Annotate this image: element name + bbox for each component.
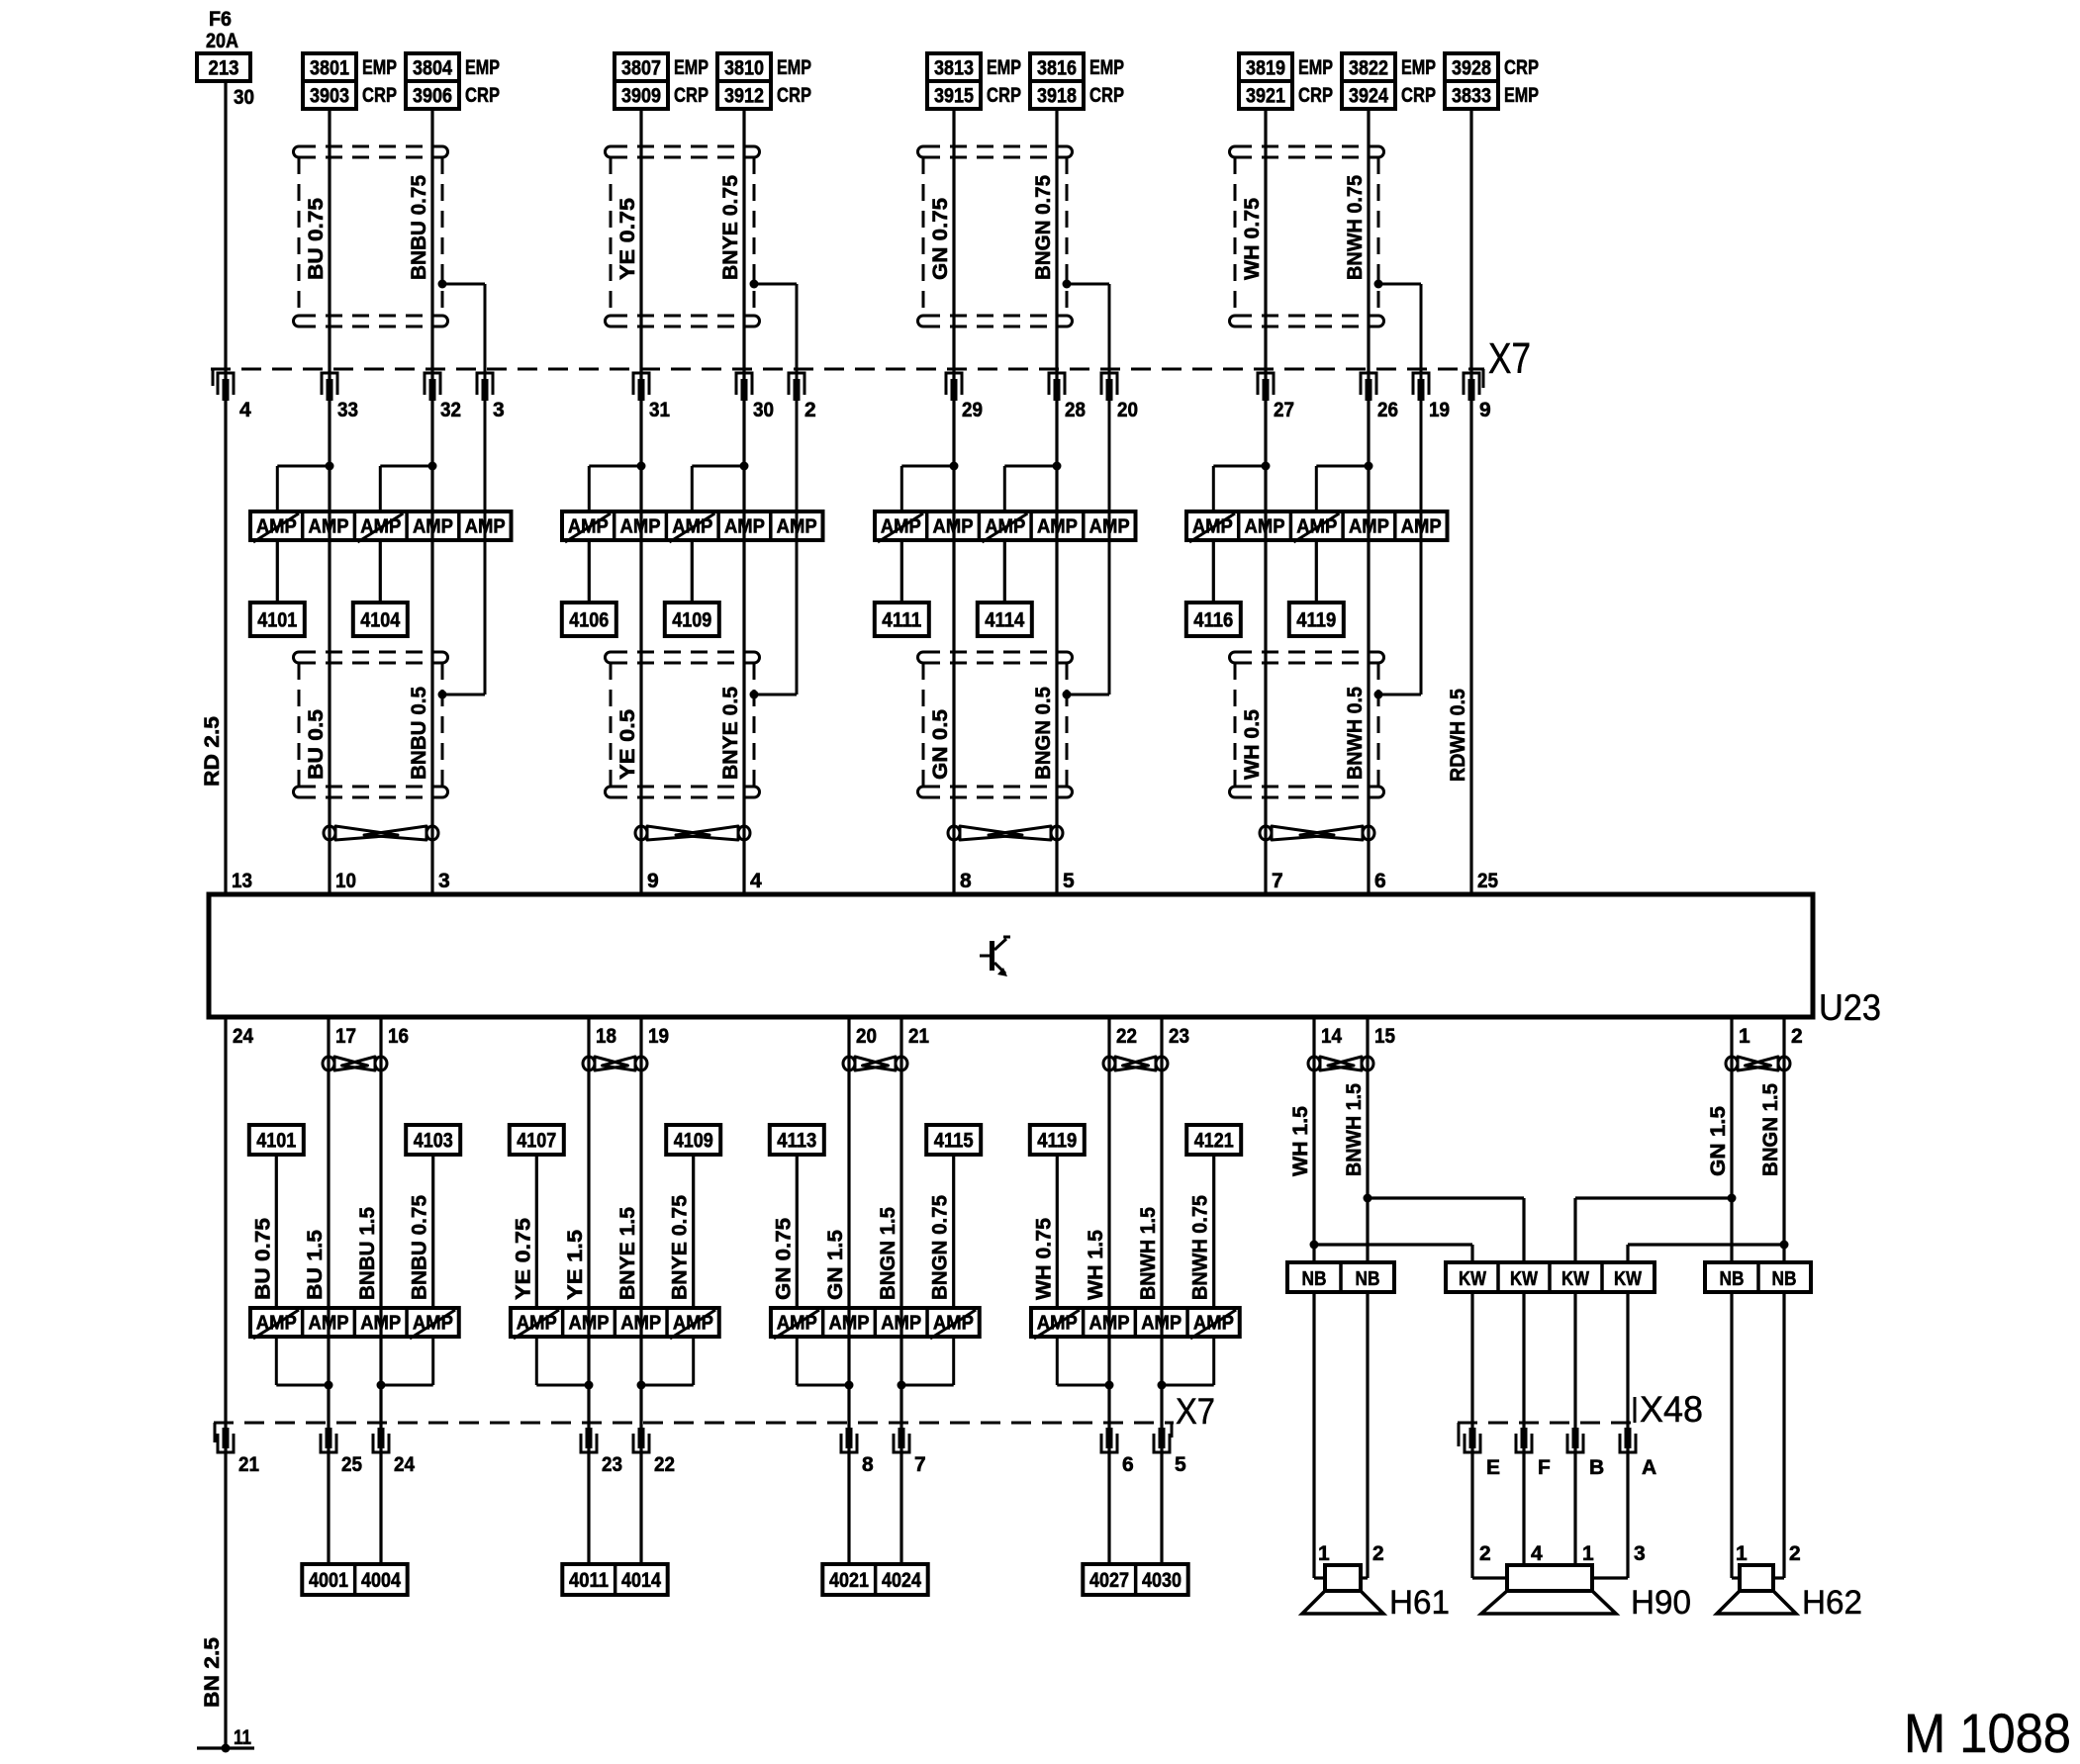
svg-text:EMP: EMP xyxy=(987,56,1021,79)
svg-text:X48: X48 xyxy=(1640,1389,1703,1430)
svg-text:BU 0.75: BU 0.75 xyxy=(305,198,328,280)
svg-text:WH 0.75: WH 0.75 xyxy=(1032,1218,1055,1300)
svg-text:25: 25 xyxy=(1477,870,1498,892)
svg-text:4104: 4104 xyxy=(360,609,400,632)
svg-text:BNYE 0.75: BNYE 0.75 xyxy=(719,175,742,280)
svg-text:EMP: EMP xyxy=(674,56,709,79)
svg-text:GN 1.5: GN 1.5 xyxy=(1707,1106,1730,1176)
svg-text:BNYE 0.5: BNYE 0.5 xyxy=(719,687,742,780)
svg-text:4001: 4001 xyxy=(309,1569,348,1592)
svg-text:YE 0.75: YE 0.75 xyxy=(512,1218,534,1300)
svg-text:4111: 4111 xyxy=(882,609,921,632)
svg-text:29: 29 xyxy=(962,399,983,421)
svg-text:4: 4 xyxy=(1531,1542,1543,1565)
svg-text:AMP: AMP xyxy=(829,1312,870,1335)
svg-text:NB: NB xyxy=(1356,1267,1380,1290)
svg-text:3918: 3918 xyxy=(1037,85,1077,108)
svg-text:31: 31 xyxy=(649,399,670,421)
svg-text:AMP: AMP xyxy=(1037,515,1078,538)
svg-text:EMP: EMP xyxy=(777,56,811,79)
svg-text:GN 1.5: GN 1.5 xyxy=(824,1230,847,1300)
svg-text:3807: 3807 xyxy=(621,57,661,80)
svg-text:3: 3 xyxy=(438,870,450,892)
svg-text:BNBU 0.5: BNBU 0.5 xyxy=(408,687,430,780)
svg-text:7: 7 xyxy=(914,1453,926,1476)
svg-text:23: 23 xyxy=(1169,1025,1189,1048)
svg-text:24: 24 xyxy=(394,1453,415,1476)
svg-text:AMP: AMP xyxy=(933,515,974,538)
svg-text:AMP: AMP xyxy=(881,1312,921,1335)
svg-text:10: 10 xyxy=(335,870,356,892)
svg-text:16: 16 xyxy=(388,1025,409,1048)
svg-text:CRP: CRP xyxy=(465,84,500,107)
svg-text:6: 6 xyxy=(1374,870,1386,892)
svg-text:3921: 3921 xyxy=(1246,85,1285,108)
svg-text:1: 1 xyxy=(1318,1542,1330,1565)
svg-text:18: 18 xyxy=(596,1025,616,1048)
svg-text:CRP: CRP xyxy=(1298,84,1333,107)
svg-text:U23: U23 xyxy=(1819,987,1881,1028)
svg-text:NB: NB xyxy=(1720,1267,1745,1290)
svg-text:4114: 4114 xyxy=(985,609,1024,632)
svg-text:AMP: AMP xyxy=(1089,1312,1130,1335)
svg-text:BU 1.5: BU 1.5 xyxy=(304,1230,327,1300)
svg-text:23: 23 xyxy=(602,1453,622,1476)
svg-text:BNWH 1.5: BNWH 1.5 xyxy=(1137,1207,1160,1300)
svg-text:A: A xyxy=(1642,1456,1656,1479)
svg-text:WH 0.75: WH 0.75 xyxy=(1241,198,1264,280)
svg-text:BNGN 0.75: BNGN 0.75 xyxy=(1032,175,1055,280)
svg-text:2: 2 xyxy=(1791,1025,1803,1048)
svg-text:AMP: AMP xyxy=(309,1312,349,1335)
svg-text:4115: 4115 xyxy=(934,1130,974,1153)
svg-text:3810: 3810 xyxy=(724,57,764,80)
svg-text:9: 9 xyxy=(1479,399,1491,421)
svg-text:3928: 3928 xyxy=(1452,57,1491,80)
svg-text:4121: 4121 xyxy=(1194,1130,1234,1153)
svg-text:GN 0.75: GN 0.75 xyxy=(772,1218,795,1300)
svg-text:BNYE 0.75: BNYE 0.75 xyxy=(669,1195,692,1300)
svg-text:4011: 4011 xyxy=(569,1569,609,1592)
svg-text:22: 22 xyxy=(1116,1025,1137,1048)
svg-text:4101: 4101 xyxy=(256,1130,296,1153)
svg-text:6: 6 xyxy=(1122,1453,1134,1476)
svg-text:BNGN 1.5: BNGN 1.5 xyxy=(877,1207,899,1300)
svg-text:3909: 3909 xyxy=(621,85,661,108)
svg-text:4: 4 xyxy=(750,870,762,892)
svg-text:AMP: AMP xyxy=(1245,515,1285,538)
svg-text:4109: 4109 xyxy=(674,1130,713,1153)
svg-text:20: 20 xyxy=(1117,399,1138,421)
svg-text:X7: X7 xyxy=(1488,334,1531,383)
svg-text:21: 21 xyxy=(908,1025,929,1048)
svg-text:YE 1.5: YE 1.5 xyxy=(564,1230,587,1300)
svg-text:CRP: CRP xyxy=(1504,56,1539,79)
svg-text:BNBU 1.5: BNBU 1.5 xyxy=(356,1207,379,1300)
svg-text:AMP: AMP xyxy=(1401,515,1442,538)
svg-text:NB: NB xyxy=(1772,1267,1797,1290)
svg-text:3903: 3903 xyxy=(310,85,349,108)
svg-text:13: 13 xyxy=(232,870,252,892)
svg-text:4: 4 xyxy=(239,399,251,421)
svg-text:BU 0.5: BU 0.5 xyxy=(305,709,328,780)
svg-text:CRP: CRP xyxy=(1089,84,1124,107)
svg-text:AMP: AMP xyxy=(620,1312,661,1335)
svg-text:BNYE 1.5: BNYE 1.5 xyxy=(616,1207,639,1300)
svg-text:9: 9 xyxy=(647,870,659,892)
svg-text:3915: 3915 xyxy=(934,85,974,108)
svg-text:BNBU 0.75: BNBU 0.75 xyxy=(409,1195,431,1300)
svg-text:3924: 3924 xyxy=(1349,85,1388,108)
svg-text:BN 2.5: BN 2.5 xyxy=(201,1637,224,1708)
svg-text:AMP: AMP xyxy=(724,515,765,538)
svg-text:BNWH 1.5: BNWH 1.5 xyxy=(1343,1083,1366,1176)
svg-text:EMP: EMP xyxy=(1401,56,1436,79)
svg-text:11: 11 xyxy=(234,1726,251,1749)
svg-text:213: 213 xyxy=(209,57,239,80)
svg-text:H62: H62 xyxy=(1802,1584,1862,1622)
svg-text:4113: 4113 xyxy=(777,1130,816,1153)
svg-text:BNBU 0.75: BNBU 0.75 xyxy=(408,175,430,280)
svg-text:YE 0.75: YE 0.75 xyxy=(616,198,639,280)
svg-text:RDWH 0.5: RDWH 0.5 xyxy=(1447,689,1469,782)
svg-text:B: B xyxy=(1589,1456,1604,1479)
svg-text:4014: 4014 xyxy=(621,1569,661,1592)
svg-text:32: 32 xyxy=(440,399,461,421)
svg-text:X7: X7 xyxy=(1176,1391,1215,1432)
svg-text:22: 22 xyxy=(654,1453,675,1476)
svg-text:3801: 3801 xyxy=(310,57,349,80)
svg-text:AMP: AMP xyxy=(620,515,661,538)
svg-text:28: 28 xyxy=(1065,399,1086,421)
svg-text:33: 33 xyxy=(337,399,358,421)
svg-text:CRP: CRP xyxy=(362,84,397,107)
svg-text:AMP: AMP xyxy=(360,1312,401,1335)
svg-text:4004: 4004 xyxy=(361,1569,401,1592)
svg-text:4109: 4109 xyxy=(672,609,711,632)
svg-text:WH 0.5: WH 0.5 xyxy=(1241,709,1264,780)
svg-text:F: F xyxy=(1538,1456,1551,1479)
svg-text:20: 20 xyxy=(856,1025,877,1048)
svg-text:EMP: EMP xyxy=(362,56,397,79)
svg-text:2: 2 xyxy=(1479,1542,1491,1565)
svg-text:27: 27 xyxy=(1274,399,1294,421)
svg-text:BNWH 0.5: BNWH 0.5 xyxy=(1344,687,1367,780)
svg-text:4119: 4119 xyxy=(1296,609,1336,632)
svg-text:AMP: AMP xyxy=(777,515,817,538)
svg-text:CRP: CRP xyxy=(1401,84,1436,107)
svg-text:26: 26 xyxy=(1377,399,1398,421)
svg-text:EMP: EMP xyxy=(1504,84,1539,107)
svg-text:4021: 4021 xyxy=(829,1569,869,1592)
svg-text:H90: H90 xyxy=(1631,1584,1691,1622)
svg-text:8: 8 xyxy=(862,1453,874,1476)
svg-text:1: 1 xyxy=(1736,1542,1748,1565)
svg-text:AMP: AMP xyxy=(1141,1312,1182,1335)
svg-text:3912: 3912 xyxy=(724,85,764,108)
svg-text:BNGN 0.5: BNGN 0.5 xyxy=(1032,687,1055,780)
svg-text:4103: 4103 xyxy=(414,1130,453,1153)
svg-text:CRP: CRP xyxy=(674,84,709,107)
svg-text:BNWH 0.75: BNWH 0.75 xyxy=(1189,1195,1212,1300)
svg-text:19: 19 xyxy=(1429,399,1450,421)
svg-text:AMP: AMP xyxy=(569,1312,610,1335)
svg-text:EMP: EMP xyxy=(1089,56,1124,79)
svg-text:5: 5 xyxy=(1175,1453,1186,1476)
svg-text:4027: 4027 xyxy=(1089,1569,1129,1592)
svg-text:EMP: EMP xyxy=(465,56,500,79)
svg-text:3804: 3804 xyxy=(413,57,452,80)
svg-text:H61: H61 xyxy=(1389,1584,1450,1622)
svg-text:7: 7 xyxy=(1272,870,1283,892)
svg-text:30: 30 xyxy=(753,399,774,421)
svg-text:WH 1.5: WH 1.5 xyxy=(1289,1106,1312,1176)
svg-text:4119: 4119 xyxy=(1037,1130,1077,1153)
svg-text:4116: 4116 xyxy=(1193,609,1233,632)
svg-text:KW: KW xyxy=(1561,1267,1590,1290)
svg-text:RD 2.5: RD 2.5 xyxy=(201,716,224,787)
svg-text:AMP: AMP xyxy=(1349,515,1389,538)
svg-text:2: 2 xyxy=(1789,1542,1801,1565)
svg-text:3906: 3906 xyxy=(413,85,452,108)
svg-text:1: 1 xyxy=(1739,1025,1750,1048)
svg-text:AMP: AMP xyxy=(413,515,453,538)
svg-text:15: 15 xyxy=(1374,1025,1395,1048)
svg-text:3: 3 xyxy=(493,399,505,421)
svg-text:19: 19 xyxy=(648,1025,669,1048)
svg-text:BU 0.75: BU 0.75 xyxy=(251,1218,274,1300)
svg-text:KW: KW xyxy=(1510,1267,1539,1290)
svg-text:BNWH 0.75: BNWH 0.75 xyxy=(1344,175,1367,280)
svg-text:3813: 3813 xyxy=(934,57,974,80)
svg-text:BNGN 0.75: BNGN 0.75 xyxy=(929,1195,952,1300)
svg-text:1: 1 xyxy=(1582,1542,1594,1565)
svg-text:KW: KW xyxy=(1459,1267,1487,1290)
svg-text:8: 8 xyxy=(960,870,972,892)
svg-text:AMP: AMP xyxy=(309,515,349,538)
svg-text:GN 0.5: GN 0.5 xyxy=(929,709,952,780)
svg-text:AMP: AMP xyxy=(1089,515,1130,538)
svg-text:M 1088: M 1088 xyxy=(1904,1702,2071,1764)
svg-text:3822: 3822 xyxy=(1349,57,1388,80)
svg-text:2: 2 xyxy=(1372,1542,1384,1565)
svg-text:NB: NB xyxy=(1302,1267,1327,1290)
svg-text:E: E xyxy=(1486,1456,1500,1479)
svg-text:GN 0.75: GN 0.75 xyxy=(929,198,952,280)
svg-text:YE 0.5: YE 0.5 xyxy=(616,709,639,780)
svg-text:WH 1.5: WH 1.5 xyxy=(1085,1230,1107,1300)
svg-text:14: 14 xyxy=(1321,1025,1342,1048)
svg-text:4101: 4101 xyxy=(257,609,297,632)
svg-text:CRP: CRP xyxy=(987,84,1021,107)
svg-text:CRP: CRP xyxy=(777,84,811,107)
svg-text:3833: 3833 xyxy=(1452,85,1491,108)
svg-text:KW: KW xyxy=(1614,1267,1643,1290)
svg-text:3816: 3816 xyxy=(1037,57,1077,80)
svg-text:4107: 4107 xyxy=(517,1130,556,1153)
svg-text:4106: 4106 xyxy=(569,609,609,632)
svg-text:2: 2 xyxy=(804,399,816,421)
svg-text:3819: 3819 xyxy=(1246,57,1285,80)
svg-text:20A: 20A xyxy=(206,30,238,52)
svg-text:21: 21 xyxy=(238,1453,259,1476)
svg-text:30: 30 xyxy=(234,86,254,109)
svg-text:3: 3 xyxy=(1634,1542,1646,1565)
svg-text:F6: F6 xyxy=(209,8,232,31)
svg-text:EMP: EMP xyxy=(1298,56,1333,79)
svg-text:BNGN 1.5: BNGN 1.5 xyxy=(1759,1083,1782,1176)
svg-text:24: 24 xyxy=(233,1025,253,1048)
svg-text:17: 17 xyxy=(335,1025,356,1048)
svg-text:5: 5 xyxy=(1063,870,1075,892)
svg-text:4030: 4030 xyxy=(1142,1569,1182,1592)
svg-text:4024: 4024 xyxy=(882,1569,921,1592)
svg-text:AMP: AMP xyxy=(465,515,506,538)
svg-text:25: 25 xyxy=(341,1453,362,1476)
